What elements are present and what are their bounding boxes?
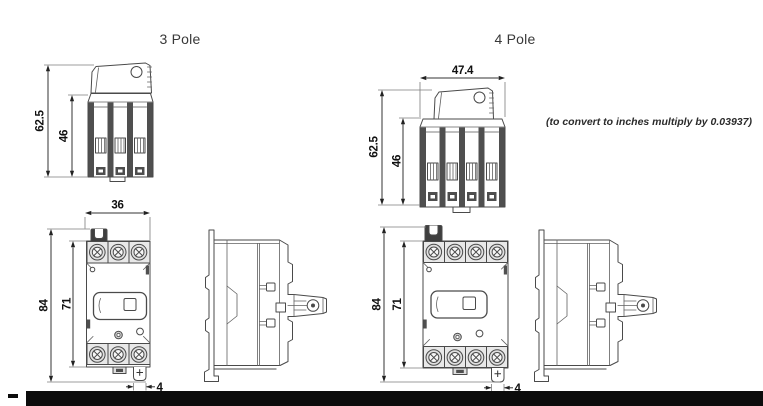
datasheet-dimension-drawing: 3 Pole 4 Pole (to convert to inches mult…	[0, 0, 763, 406]
terminal-screw	[110, 347, 126, 363]
dim-3p-top-overall-height: 62.5	[35, 110, 47, 132]
terminal-screw	[90, 244, 106, 260]
toggle-handle-top	[91, 63, 152, 93]
terminal-screw	[426, 350, 442, 366]
toggle-handle-top	[434, 88, 494, 119]
four-pole-top-view: 47.4 62.5 46	[365, 55, 515, 215]
three-pole-top-device	[88, 63, 153, 182]
switch-toggle	[94, 293, 147, 320]
dim-4p-top-overall-height: 62.5	[369, 136, 381, 158]
switch-toggle	[431, 291, 487, 318]
terminal-screw	[489, 244, 505, 260]
terminal-screw	[447, 350, 463, 366]
three-pole-top-dimensions: 62.5 46	[35, 65, 95, 177]
dim-4p-front-overall-height: 84	[372, 298, 384, 311]
four-pole-front-view: 84 71 4	[363, 220, 528, 400]
terminal-screw	[468, 350, 484, 366]
three-pole-side-view	[195, 218, 335, 388]
four-pole-front-device	[423, 226, 508, 383]
dim-4p-top-body-height: 46	[392, 155, 404, 167]
three-pole-side-device	[205, 230, 327, 382]
body-chevron	[557, 286, 567, 324]
four-pole-side-view	[528, 222, 663, 382]
din-rail-plate	[535, 230, 549, 382]
handle-knob	[131, 67, 142, 78]
terminal-screw	[131, 244, 147, 260]
terminal-screw	[447, 244, 463, 260]
dim-3p-front-overall-height: 84	[39, 299, 51, 312]
dim-3p-top-body-height: 46	[59, 130, 71, 142]
three-pole-top-view: 62.5 46	[30, 55, 165, 185]
terminal-screw	[489, 350, 505, 366]
conversion-note: (to convert to inches multiply by 0.0393…	[546, 116, 752, 128]
din-rail-plate	[205, 230, 219, 382]
dim-3p-front-width: 36	[111, 200, 123, 212]
three-pole-title: 3 Pole	[160, 31, 201, 47]
terminal-screw	[468, 244, 484, 260]
terminal-screw	[426, 244, 442, 260]
four-pole-top-device	[420, 88, 505, 213]
terminal-screw	[90, 347, 106, 363]
four-pole-side-device	[535, 230, 657, 382]
dim-3p-front-body-height: 71	[62, 297, 74, 310]
footer-bar	[26, 391, 763, 406]
three-pole-front-view: 36 84 71 4	[30, 195, 175, 395]
three-pole-front-device	[87, 229, 151, 381]
body-chevron	[227, 286, 237, 324]
terminal-screw	[110, 244, 126, 260]
footer-dash	[8, 394, 18, 398]
breaker-body	[88, 94, 153, 178]
four-pole-title: 4 Pole	[495, 31, 536, 47]
dim-4p-top-width: 47.4	[452, 65, 474, 77]
dim-4p-front-body-height: 71	[392, 298, 404, 311]
terminal-screw	[131, 347, 147, 363]
handle-knob	[474, 92, 485, 103]
